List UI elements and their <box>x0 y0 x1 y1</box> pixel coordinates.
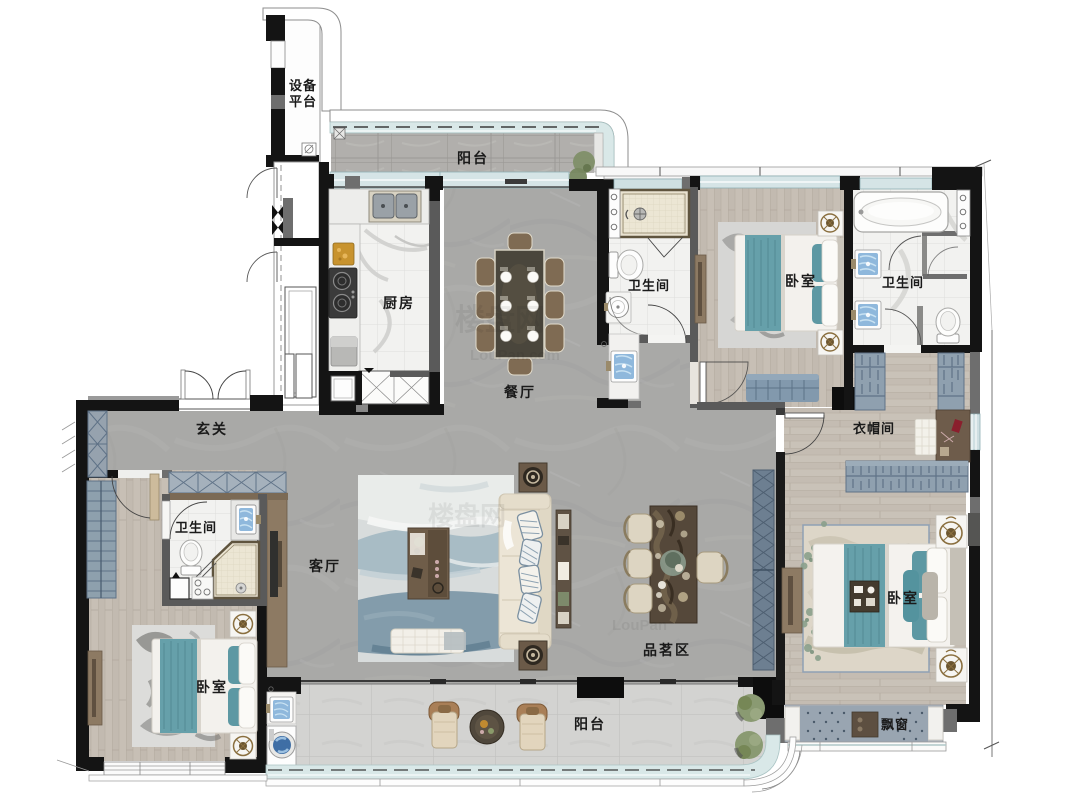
svg-text:卫生间: 卫生间 <box>882 275 924 290</box>
svg-text:玄关: 玄关 <box>196 421 228 437</box>
svg-text:餐厅: 餐厅 <box>503 384 536 400</box>
svg-text:客厅: 客厅 <box>308 558 341 574</box>
svg-text:卧室: 卧室 <box>785 273 817 289</box>
svg-text:楼盘网: 楼盘网 <box>455 303 545 337</box>
svg-text:卫生间: 卫生间 <box>175 520 217 535</box>
svg-text:厨房: 厨房 <box>383 295 415 311</box>
svg-text:品茗区: 品茗区 <box>643 642 691 658</box>
svg-text:卧室: 卧室 <box>196 679 228 695</box>
svg-text:飘窗: 飘窗 <box>881 717 909 732</box>
svg-text:阳台: 阳台 <box>457 150 489 166</box>
svg-text:平台: 平台 <box>289 94 317 109</box>
svg-text:楼盘网: 楼盘网 <box>428 501 506 531</box>
svg-text:阳台: 阳台 <box>574 716 606 732</box>
svg-text:卧室: 卧室 <box>887 590 919 606</box>
svg-text:LouPan.com: LouPan.com <box>470 347 560 364</box>
svg-text:设备: 设备 <box>289 78 317 93</box>
svg-text:衣帽间: 衣帽间 <box>853 421 895 436</box>
svg-text:LouPan: LouPan <box>612 617 667 634</box>
svg-text:卫生间: 卫生间 <box>628 278 670 293</box>
